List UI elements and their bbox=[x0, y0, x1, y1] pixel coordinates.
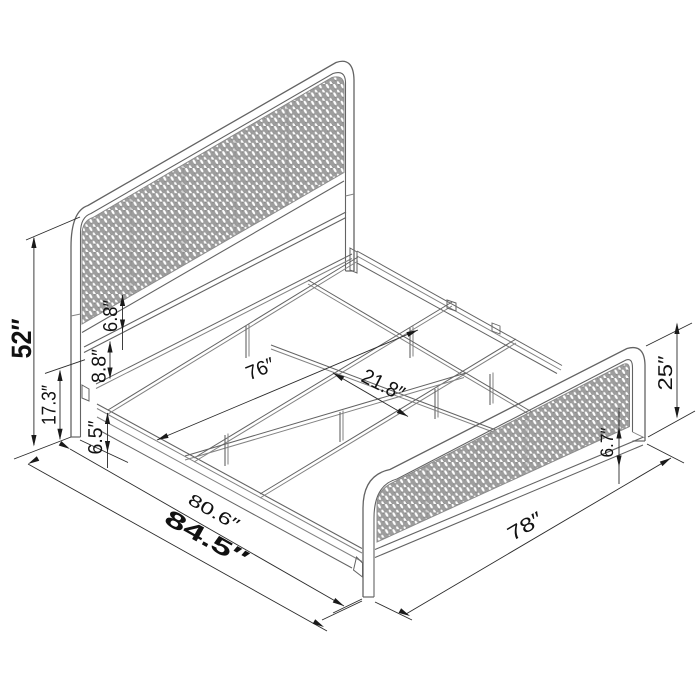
svg-text:17.3″: 17.3″ bbox=[39, 385, 61, 425]
svg-text:6.7″: 6.7″ bbox=[597, 427, 617, 458]
svg-text:52″: 52″ bbox=[6, 319, 37, 359]
svg-text:6.5″: 6.5″ bbox=[85, 421, 107, 455]
svg-text:8.8″: 8.8″ bbox=[89, 349, 111, 383]
svg-text:6.8″: 6.8″ bbox=[100, 300, 122, 332]
svg-text:25″: 25″ bbox=[655, 356, 677, 391]
